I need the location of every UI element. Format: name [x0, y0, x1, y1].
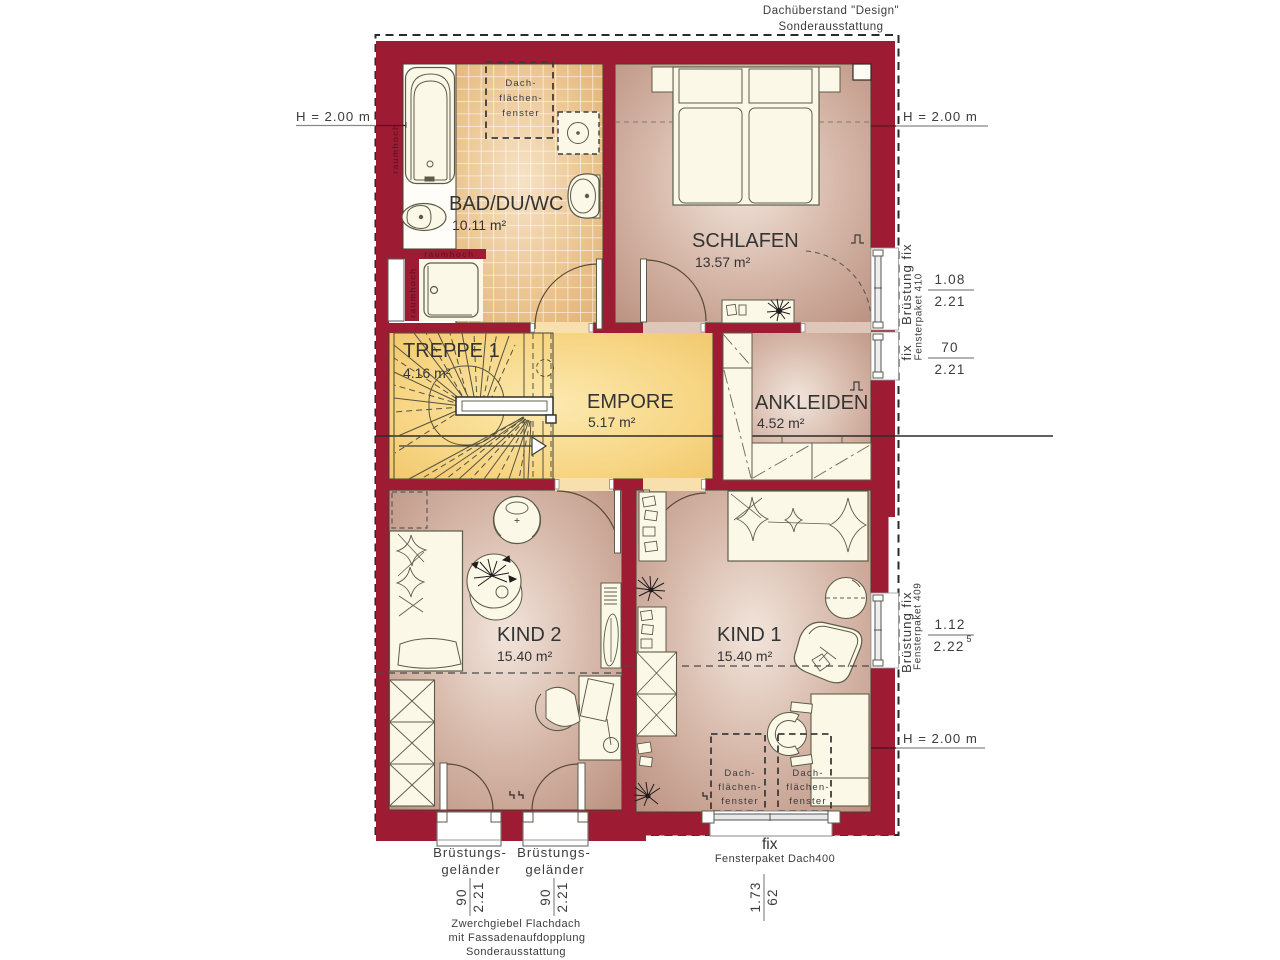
svg-text:Brüstung fix: Brüstung fix — [899, 243, 914, 325]
svg-text:2.21: 2.21 — [471, 881, 486, 912]
svg-text:raumhoch: raumhoch — [424, 249, 474, 259]
svg-text:62: 62 — [765, 888, 780, 905]
svg-text:fix: fix — [762, 836, 778, 853]
svg-text:BAD/DU/WC: BAD/DU/WC — [449, 193, 563, 215]
svg-text:2.21: 2.21 — [934, 294, 965, 309]
svg-text:90: 90 — [454, 888, 469, 905]
svg-text:4.16 m²: 4.16 m² — [403, 365, 451, 381]
svg-text:Dach-: Dach- — [505, 78, 536, 89]
svg-text:ANKLEIDEN: ANKLEIDEN — [755, 392, 868, 414]
svg-text:Fensterpaket 409: Fensterpaket 409 — [913, 583, 924, 670]
svg-text:2.21: 2.21 — [934, 362, 965, 377]
svg-text:H = 2.00 m: H = 2.00 m — [903, 109, 978, 124]
svg-text:TREPPE 1: TREPPE 1 — [403, 340, 500, 362]
svg-text:15.40 m²: 15.40 m² — [717, 648, 773, 664]
svg-text:5: 5 — [966, 634, 971, 644]
svg-text:fenster: fenster — [502, 108, 539, 119]
svg-text:Sonderausstattung: Sonderausstattung — [466, 946, 566, 958]
svg-text:mit Fassadenaufdopplung: mit Fassadenaufdopplung — [449, 932, 586, 944]
svg-text:fenster: fenster — [789, 796, 826, 807]
svg-text:KIND 1: KIND 1 — [717, 624, 781, 646]
svg-text:EMPORE: EMPORE — [587, 391, 674, 413]
svg-text:5.17 m²: 5.17 m² — [588, 414, 636, 430]
svg-text:15.40 m²: 15.40 m² — [497, 648, 553, 664]
svg-text:fenster: fenster — [721, 796, 758, 807]
svg-text:Brüstungs-: Brüstungs- — [517, 845, 591, 860]
svg-text:70: 70 — [941, 340, 958, 355]
svg-text:Fensterpaket Dach400: Fensterpaket Dach400 — [715, 853, 835, 865]
svg-text:1.12: 1.12 — [934, 617, 965, 632]
svg-text:raumhoch: raumhoch — [390, 124, 400, 174]
svg-text:flächen-: flächen- — [718, 782, 761, 793]
svg-text:flächen-: flächen- — [786, 782, 829, 793]
svg-text:Zwerchgiebel Flachdach: Zwerchgiebel Flachdach — [451, 918, 580, 930]
svg-text:10.11 m²: 10.11 m² — [452, 217, 507, 233]
svg-text:Dach-: Dach- — [792, 768, 823, 779]
svg-text:1.73: 1.73 — [748, 881, 763, 912]
svg-text:1.08: 1.08 — [934, 272, 965, 287]
svg-text:4.52 m²: 4.52 m² — [757, 415, 805, 431]
svg-text:2.22: 2.22 — [933, 639, 964, 654]
svg-text:fix: fix — [899, 344, 914, 360]
svg-text:SCHLAFEN: SCHLAFEN — [692, 230, 799, 252]
svg-text:Fensterpaket 410: Fensterpaket 410 — [914, 273, 925, 360]
svg-text:Brüstungs-: Brüstungs- — [433, 845, 507, 860]
svg-text:H = 2.00 m: H = 2.00 m — [903, 731, 978, 746]
svg-text:90: 90 — [538, 888, 553, 905]
svg-text:Dach-: Dach- — [724, 768, 755, 779]
svg-text:flächen-: flächen- — [499, 93, 542, 104]
svg-text:H = 2.00 m: H = 2.00 m — [296, 109, 371, 124]
svg-text:geländer: geländer — [525, 862, 584, 877]
svg-text:13.57 m²: 13.57 m² — [695, 254, 751, 270]
svg-text:geländer: geländer — [441, 862, 500, 877]
svg-text:raumhoch: raumhoch — [408, 268, 418, 318]
svg-text:KIND 2: KIND 2 — [497, 624, 561, 646]
svg-text:Dachüberstand "Design": Dachüberstand "Design" — [763, 5, 899, 17]
svg-text:2.21: 2.21 — [555, 881, 570, 912]
svg-text:Sonderausstattung: Sonderausstattung — [778, 21, 883, 33]
